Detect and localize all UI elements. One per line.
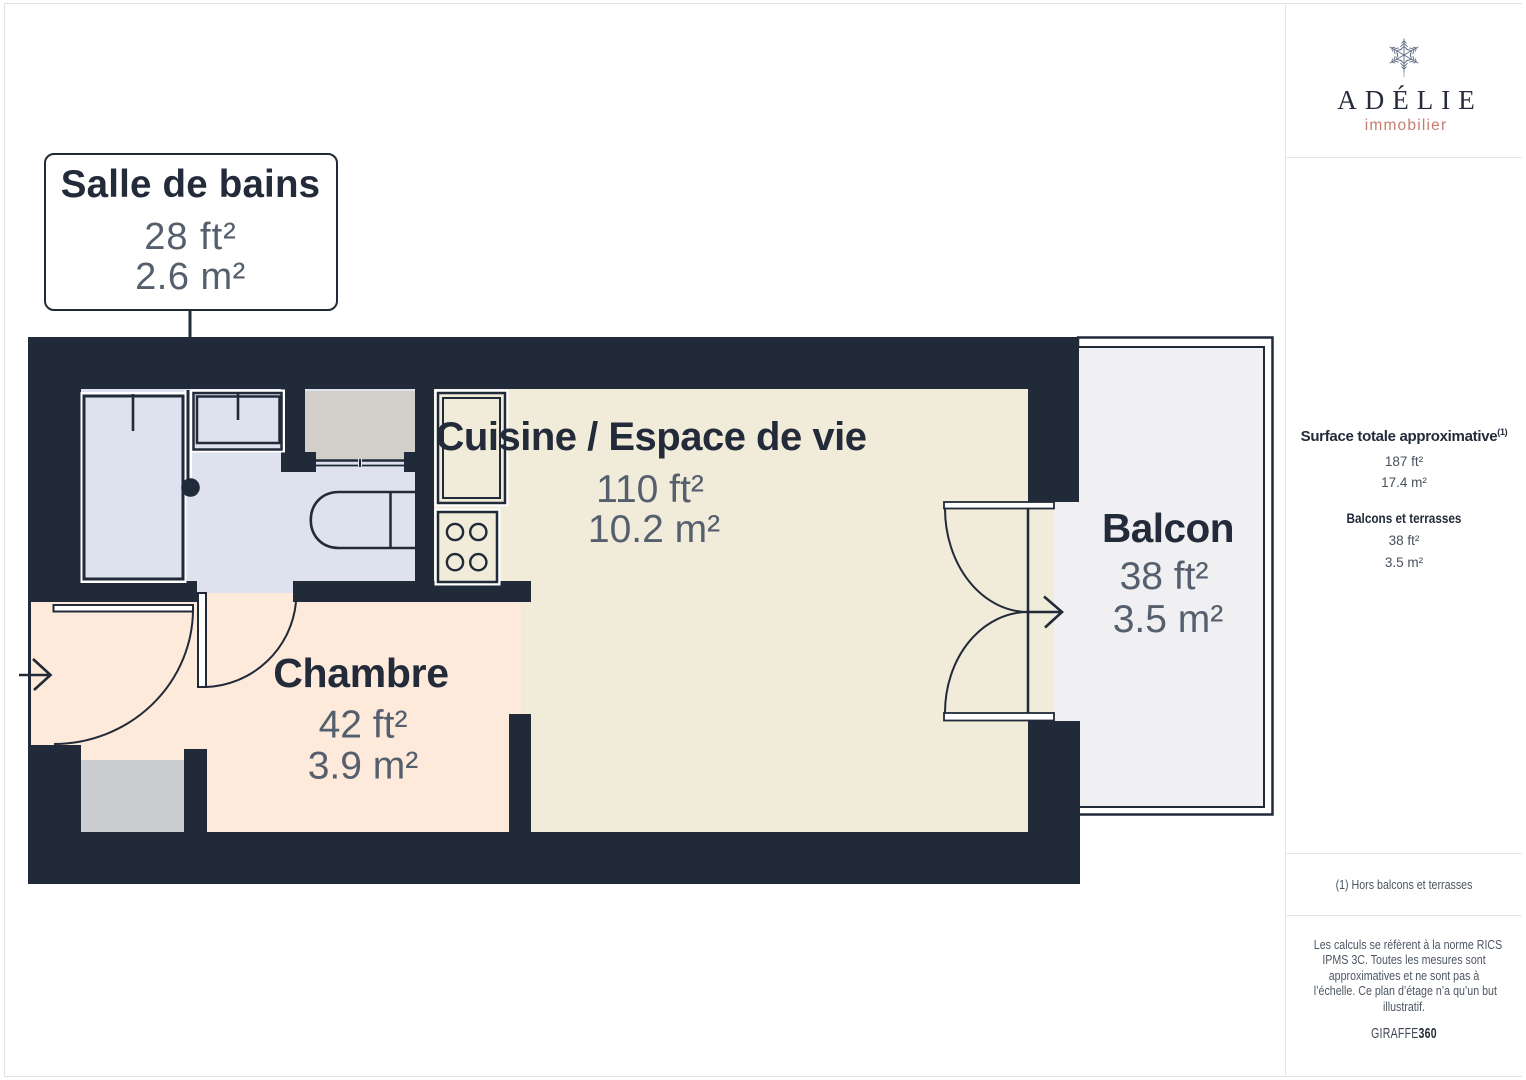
svg-text:Balcon: Balcon xyxy=(1102,505,1234,551)
svg-text:110 ft²: 110 ft² xyxy=(596,468,704,511)
svg-text:3.5 m²: 3.5 m² xyxy=(1113,598,1224,641)
svg-text:3.9 m²: 3.9 m² xyxy=(308,745,419,788)
svg-text:Chambre: Chambre xyxy=(273,650,449,696)
svg-text:Cuisine / Espace de vie: Cuisine / Espace de vie xyxy=(436,415,867,459)
svg-text:42 ft²: 42 ft² xyxy=(319,704,408,747)
svg-text:38 ft²: 38 ft² xyxy=(1120,555,1209,598)
svg-text:10.2 m²: 10.2 m² xyxy=(588,508,720,551)
